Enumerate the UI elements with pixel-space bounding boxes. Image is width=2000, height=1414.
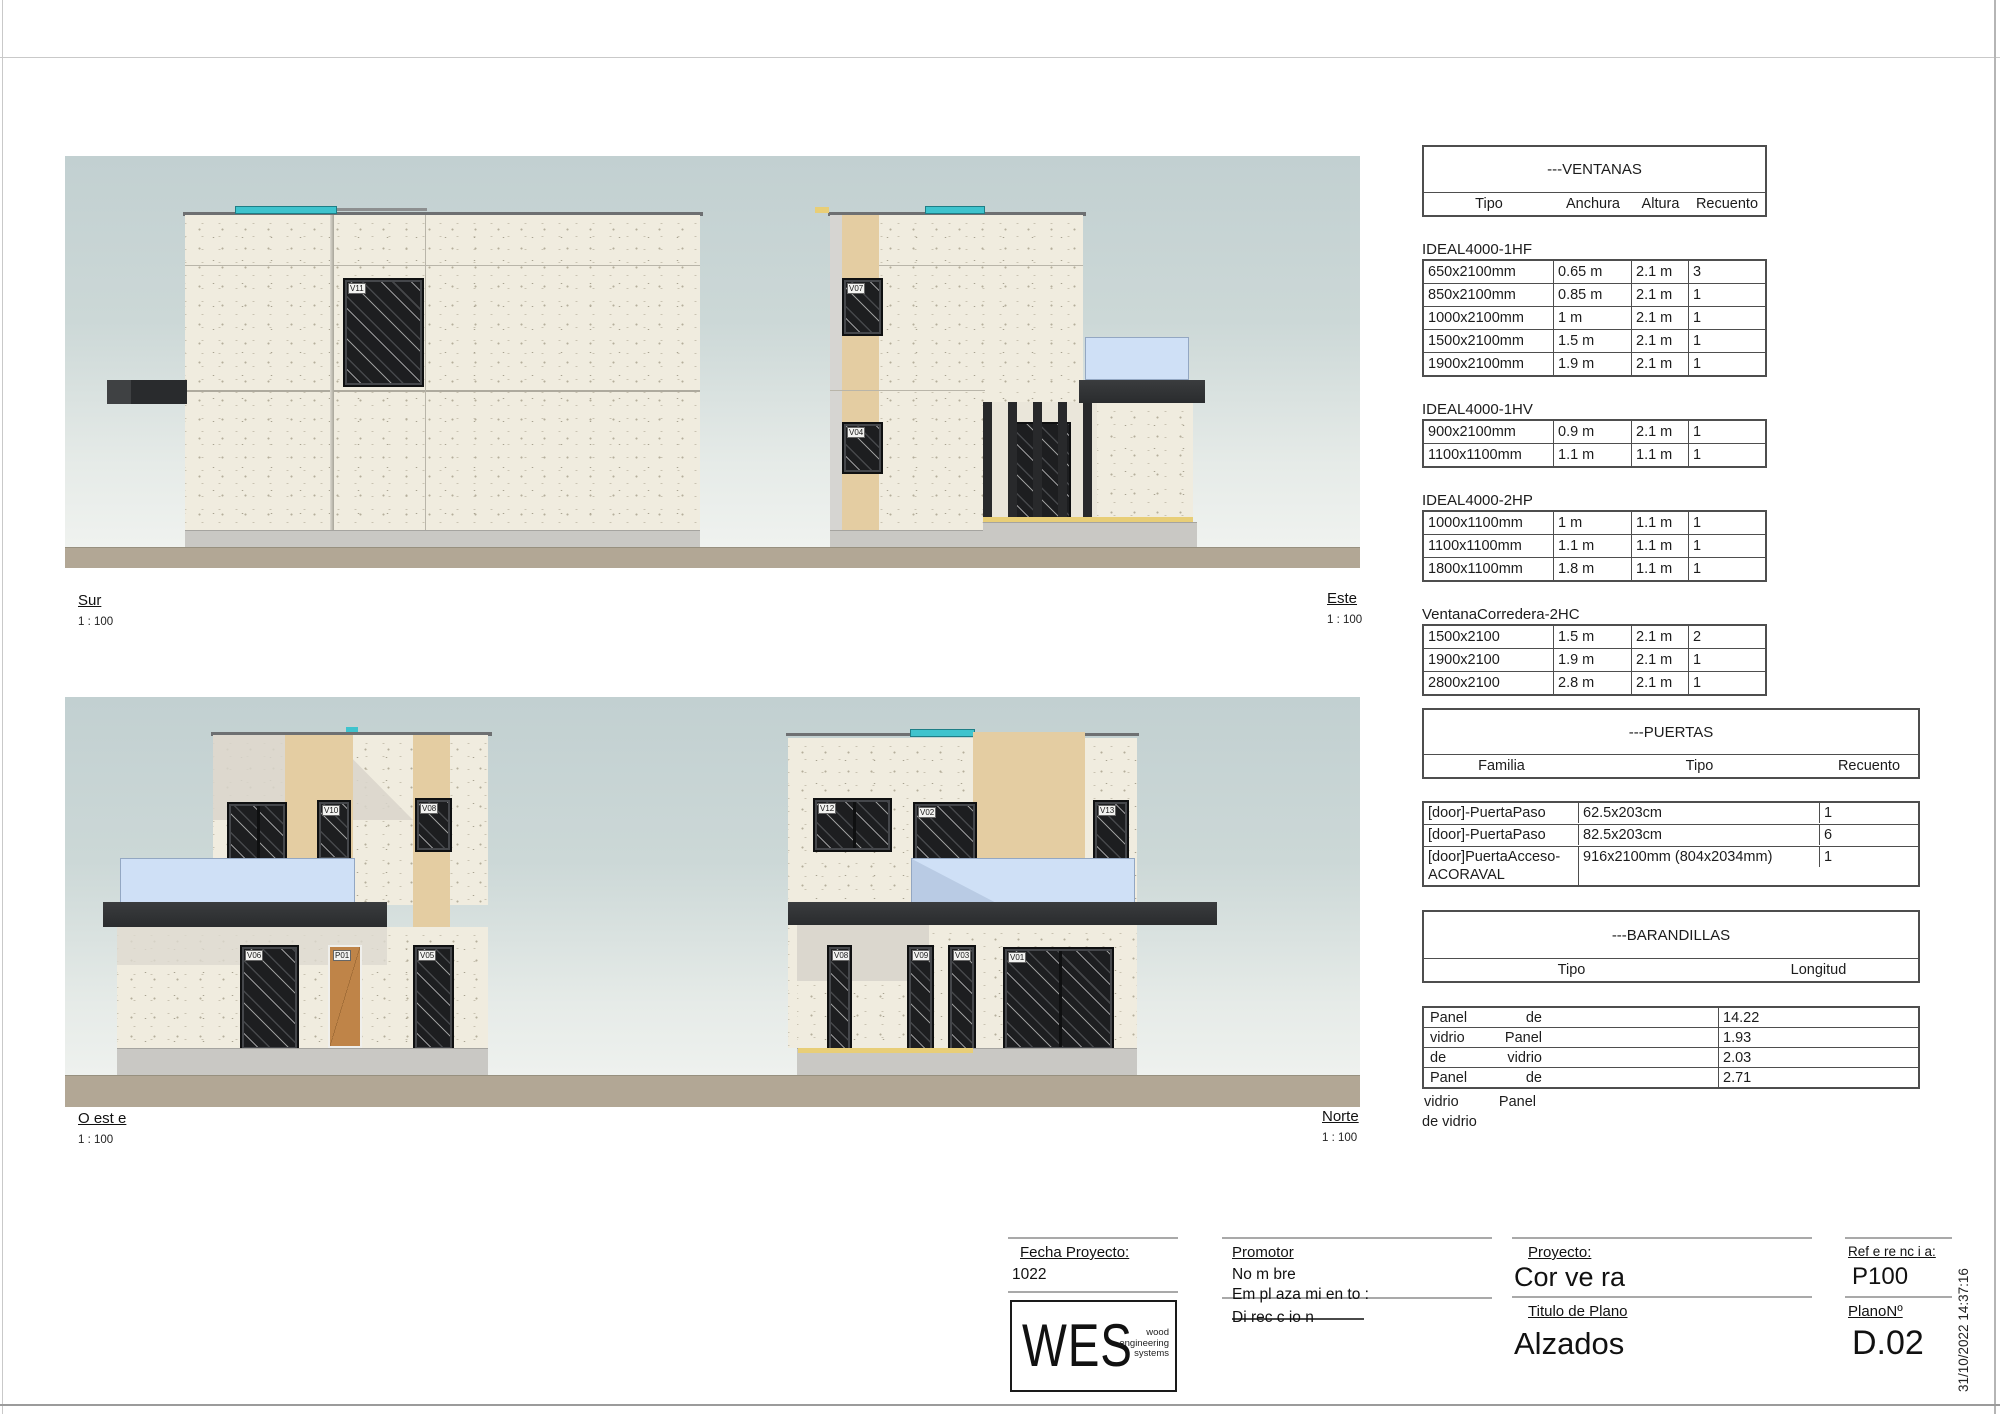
window-tag: V10: [322, 805, 340, 816]
table-cell: 1000x1100mm: [1424, 512, 1554, 534]
table-row: 900x2100mm0.9 m2.1 m1: [1424, 421, 1765, 443]
este-joint-line: [879, 265, 1083, 266]
table-row: [door]-PuertaPaso62.5x203cm1: [1424, 803, 1918, 824]
table-cell: 14.22: [1719, 1008, 1918, 1027]
table-cell: 1.1 m: [1632, 558, 1689, 580]
table-cell: 2800x2100: [1424, 672, 1554, 694]
table-cell: 1000x2100mm: [1424, 307, 1554, 329]
puertas-header: ---PUERTAS Familia Tipo Recuento: [1422, 708, 1920, 779]
tipo-words: devidrio: [1428, 1050, 1542, 1066]
table-row: Panelde2.71: [1424, 1067, 1918, 1087]
window-mullion: [257, 806, 260, 858]
table-cell: 1.1 m: [1554, 535, 1632, 557]
word: Panel: [1505, 1030, 1542, 1046]
table-cell: 1: [1689, 512, 1765, 534]
ventanas-group-name: IDEAL4000-1HV: [1422, 401, 1767, 419]
table-row: 1000x1100mm1 m1.1 m1: [1424, 512, 1765, 534]
ventanas-group-table: 1500x21001.5 m2.1 m21900x21001.9 m2.1 m1…: [1422, 624, 1767, 696]
promotor-nombre: No m bre: [1232, 1266, 1296, 1284]
table-cell: 900x2100mm: [1424, 421, 1554, 443]
column-header: Longitud: [1719, 962, 1918, 978]
table-cell: 2.1 m: [1632, 261, 1689, 283]
ground-band: [65, 547, 1360, 568]
table-row: 1500x2100mm1.5 m2.1 m1: [1424, 329, 1765, 352]
word: de: [1430, 1050, 1446, 1066]
window-tag: V09: [912, 950, 930, 961]
elevation-viewport-sur-este: V11 V07 V04: [65, 156, 1360, 568]
este-canopy: [1079, 380, 1205, 403]
table-cell: 1: [1689, 330, 1765, 352]
ventanas-group-name: IDEAL4000-1HF: [1422, 241, 1767, 259]
norte-canopy: [788, 902, 1217, 925]
ventanas-group-table: 1000x1100mm1 m1.1 m11100x1100mm1.1 m1.1 …: [1422, 510, 1767, 582]
table-cell: 1: [1689, 672, 1765, 694]
table-cell: 1.9 m: [1554, 353, 1632, 375]
table-row: 850x2100mm0.85 m2.1 m1: [1424, 283, 1765, 306]
word: vidrio: [1430, 1030, 1465, 1046]
word: vidrio: [1424, 1092, 1459, 1112]
table-cell: 2.71: [1719, 1068, 1918, 1087]
oeste-plinth: [117, 1048, 488, 1076]
norte-window-v12: V12: [813, 798, 892, 852]
este-tan-strip: [842, 215, 879, 530]
table-row: 1500x21001.5 m2.1 m2: [1424, 626, 1765, 648]
wes-logo-tagline: wood engineering systems: [1119, 1328, 1169, 1360]
window-tag: V02: [918, 807, 936, 818]
table-row: Panelde14.22: [1424, 1008, 1918, 1027]
norte-tan-panel: [973, 732, 1085, 860]
window-tag: V07: [847, 283, 865, 294]
table-cell: 1.8 m: [1554, 558, 1632, 580]
elevation-label-oeste: O est e: [78, 1110, 126, 1127]
table-cell: 850x2100mm: [1424, 284, 1554, 306]
window-tag: V08: [420, 803, 438, 814]
table-cell: 2.1 m: [1632, 307, 1689, 329]
promotor-direccion: Di rec c io n: [1232, 1309, 1314, 1327]
tipo-words: vidrioPanel: [1428, 1030, 1542, 1046]
barandillas-columns: Tipo Longitud: [1424, 958, 1918, 981]
ventanas-group-name: IDEAL4000-2HP: [1422, 492, 1767, 510]
wes-logo-text: WES: [1022, 1316, 1133, 1376]
table-cell: 2.1 m: [1632, 330, 1689, 352]
este-porch-base: [983, 522, 1097, 549]
este-porch-slats: [983, 402, 1097, 517]
table-cell: 1.1 m: [1632, 444, 1689, 466]
ventanas-group-table: 900x2100mm0.9 m2.1 m11100x1100mm1.1 m1.1…: [1422, 419, 1767, 468]
table-cell: 2.1 m: [1632, 421, 1689, 443]
sur-roof-skylight: [235, 206, 337, 214]
elevation-label-sur: Sur: [78, 592, 101, 609]
table-row: 1000x2100mm1 m2.1 m1: [1424, 306, 1765, 329]
window-tag: V06: [245, 950, 263, 961]
sur-joint-line: [185, 265, 700, 266]
table-row: 1900x21001.9 m2.1 m1: [1424, 648, 1765, 671]
ventanas-group-name: VentanaCorredera-2HC: [1422, 606, 1767, 624]
titleblock-rule: [1222, 1237, 1492, 1239]
window-mullion: [1059, 951, 1062, 1047]
este-window-upper: V07: [842, 278, 883, 336]
norte-opening-2: V09: [907, 945, 934, 1052]
proyecto-value: Cor ve ra: [1514, 1262, 1625, 1293]
fecha-label: Fecha Proyecto:: [1020, 1244, 1129, 1261]
table-cell: 1.1 m: [1554, 444, 1632, 466]
sheet-frame-bottom: [0, 1404, 2000, 1406]
word: de: [1526, 1070, 1542, 1086]
table-row: 1900x2100mm1.9 m2.1 m1: [1424, 352, 1765, 375]
sur-panel-joint2: [425, 215, 426, 530]
table-cell: 1100x1100mm: [1424, 444, 1554, 466]
plano-value: D.02: [1852, 1324, 1924, 1363]
sur-panel-joint: [330, 215, 334, 530]
titleblock-rule: [1512, 1237, 1812, 1239]
titulo-label: Titulo de Plano: [1528, 1303, 1628, 1320]
titleblock-rule: [1845, 1237, 1952, 1239]
table-cell: 1: [1820, 803, 1918, 823]
table-cell: 1500x2100mm: [1424, 330, 1554, 352]
norte-opening-1: V08: [827, 945, 852, 1052]
table-cell: 2.1 m: [1632, 284, 1689, 306]
este-wing-base: [1097, 522, 1197, 549]
table-row: 2800x21002.8 m2.1 m1: [1424, 671, 1765, 694]
puertas-schedule: ---PUERTAS Familia Tipo Recuento [door]-…: [1422, 708, 1920, 887]
table-cell: 1: [1689, 649, 1765, 671]
wes-logo: WES wood engineering systems: [1010, 1300, 1177, 1392]
column-header: Tipo: [1424, 196, 1554, 212]
promotor-emplazamiento: Em pl aza mi en to :: [1232, 1286, 1369, 1304]
table-cell: 1.1 m: [1632, 535, 1689, 557]
table-cell: 3: [1689, 261, 1765, 283]
table-cell: 2.1 m: [1632, 649, 1689, 671]
table-row: 650x2100mm0.65 m2.1 m3: [1424, 261, 1765, 283]
table-row: vidrioPanel1.93: [1424, 1027, 1918, 1047]
balustrade-shade: [912, 859, 996, 903]
table-cell: 1: [1689, 307, 1765, 329]
table-cell: 2.8 m: [1554, 672, 1632, 694]
table-row: 1100x1100mm1.1 m1.1 m1: [1424, 443, 1765, 466]
table-cell: 1: [1689, 353, 1765, 375]
table-cell: 1: [1689, 421, 1765, 443]
plano-label: PlanoNº: [1848, 1303, 1903, 1320]
sheet-frame-right: [1994, 0, 1996, 1414]
barandillas-overflow: vidrio Panel de vidrio: [1422, 1092, 1920, 1132]
table-cell: [door]-PuertaPaso: [1424, 803, 1579, 823]
sheet-frame-top: [0, 57, 2000, 58]
ventanas-columns: Tipo Anchura Altura Recuento: [1424, 192, 1765, 215]
sheet-frame-left: [2, 0, 3, 1414]
table-row: [door]PuertaAcceso-ACORAVAL916x2100mm (8…: [1424, 846, 1918, 885]
este-wing-wall: [1097, 403, 1193, 517]
window-tag: V12: [818, 803, 836, 814]
table-cell: 2.1 m: [1632, 672, 1689, 694]
column-header: Anchura: [1554, 196, 1632, 212]
este-roof-skylight: [925, 206, 985, 214]
oeste-glass-balustrade: [120, 858, 355, 905]
word: vidrio: [1507, 1050, 1542, 1066]
oeste-window-v06: V06: [240, 945, 299, 1051]
word: de: [1526, 1010, 1542, 1026]
table-cell: 1: [1689, 284, 1765, 306]
table-cell: 2.03: [1719, 1048, 1918, 1067]
norte-glass-balustrade: [911, 858, 1135, 904]
table-cell: 916x2100mm (804x2034mm): [1579, 847, 1820, 867]
este-window-lower: V04: [842, 422, 883, 474]
window-tag: V13: [1098, 805, 1116, 816]
word: Panel: [1430, 1010, 1467, 1026]
oeste-window-double: [227, 802, 287, 862]
table-cell: 1.5 m: [1554, 330, 1632, 352]
este-roof-yellow: [815, 207, 829, 213]
word: Panel: [1430, 1070, 1467, 1086]
tipo-words: Panelde: [1428, 1010, 1542, 1026]
table-cell: 2.1 m: [1632, 626, 1689, 648]
table-cell: 1800x1100mm: [1424, 558, 1554, 580]
table-cell: Panelde: [1424, 1068, 1719, 1087]
table-cell: 1.5 m: [1554, 626, 1632, 648]
table-cell: 6: [1820, 825, 1918, 845]
puertas-columns: Familia Tipo Recuento: [1424, 754, 1918, 777]
norte-opening-3: V03: [948, 945, 976, 1052]
ventanas-group-table: 650x2100mm0.65 m2.1 m3850x2100mm0.85 m2.…: [1422, 259, 1767, 377]
table-cell: 82.5x203cm: [1579, 825, 1820, 845]
window-tag: V04: [847, 427, 865, 438]
overflow-line: de vidrio: [1422, 1112, 1920, 1132]
barandillas-schedule: ---BARANDILLAS Tipo Longitud Panelde14.2…: [1422, 910, 1920, 1132]
titulo-value: Alzados: [1514, 1326, 1624, 1362]
table-cell: 2: [1689, 626, 1765, 648]
table-cell: 62.5x203cm: [1579, 803, 1820, 823]
table-cell: 0.9 m: [1554, 421, 1632, 443]
table-cell: 2.1 m: [1632, 353, 1689, 375]
door-tag: P01: [333, 950, 351, 961]
oeste-window-v05: V05: [413, 945, 454, 1051]
elevation-scale-norte: 1 : 100: [1322, 1132, 1357, 1144]
table-cell: 1.93: [1719, 1028, 1918, 1047]
column-header: Recuento: [1820, 758, 1918, 774]
table-cell: 0.65 m: [1554, 261, 1632, 283]
table-cell: 1: [1689, 558, 1765, 580]
oeste-roof-skylight: [346, 727, 358, 732]
table-cell: 1500x2100: [1424, 626, 1554, 648]
window-tag: V05: [418, 950, 436, 961]
ventanas-schedule: ---VENTANAS Tipo Anchura Altura Recuento…: [1422, 145, 1767, 696]
barandillas-title: ---BARANDILLAS: [1424, 912, 1918, 958]
window-mullion: [853, 802, 856, 848]
titleblock-rule: [1008, 1237, 1178, 1239]
table-cell: [door]PuertaAcceso-ACORAVAL: [1424, 847, 1579, 885]
column-header: Familia: [1424, 758, 1579, 774]
referencia-value: P100: [1852, 1263, 1908, 1291]
overflow-line: vidrio Panel: [1422, 1092, 1536, 1112]
column-header: Recuento: [1689, 196, 1765, 212]
column-header: Tipo: [1579, 758, 1820, 774]
window-tag: V08: [832, 950, 850, 961]
tagline-line: engineering: [1119, 1338, 1169, 1349]
norte-threshold: [798, 1048, 973, 1053]
ventanas-groups: IDEAL4000-1HF650x2100mm0.65 m2.1 m3850x2…: [1422, 241, 1767, 696]
norte-roof-skylight: [910, 729, 975, 737]
tipo-words: Panelde: [1428, 1070, 1542, 1086]
window-tag: V01: [1008, 952, 1026, 963]
norte-window-v02: V02: [913, 802, 977, 864]
elevation-scale-oeste: 1 : 100: [78, 1134, 113, 1146]
sur-wall: [185, 215, 700, 530]
oeste-canopy: [103, 902, 387, 927]
table-cell: 0.85 m: [1554, 284, 1632, 306]
table-cell: [door]-PuertaPaso: [1424, 825, 1579, 845]
ventanas-header: ---VENTANAS Tipo Anchura Altura Recuento: [1422, 145, 1767, 217]
table-cell: 1: [1689, 535, 1765, 557]
titleblock-rule: [1845, 1296, 1952, 1298]
fecha-value: 1022: [1012, 1266, 1046, 1284]
table-cell: 1900x2100mm: [1424, 353, 1554, 375]
este-entry-porch: [983, 402, 1097, 517]
sur-window: V11: [343, 278, 424, 387]
table-cell: 1900x2100: [1424, 649, 1554, 671]
window-tag: V11: [348, 283, 366, 294]
table-cell: Panelde: [1424, 1008, 1719, 1027]
elevation-viewport-oeste-norte: V10 V08 V06 P01 V05 V12 V02 V1: [65, 697, 1360, 1107]
table-cell: devidrio: [1424, 1048, 1719, 1067]
tagline-line: wood: [1146, 1327, 1169, 1338]
table-cell: 1 m: [1554, 307, 1632, 329]
este-glass-balustrade: [1085, 337, 1189, 380]
table-cell: 1100x1100mm: [1424, 535, 1554, 557]
promotor-label: Promotor: [1232, 1244, 1294, 1261]
print-timestamp: 31/10/2022 14:37:16: [1956, 1192, 1971, 1392]
table-row: devidrio2.03: [1424, 1047, 1918, 1067]
word: Panel: [1499, 1092, 1536, 1112]
sur-roof-cap: [337, 208, 427, 211]
proyecto-label: Proyecto:: [1528, 1244, 1591, 1261]
table-cell: 1.1 m: [1632, 512, 1689, 534]
barandillas-header: ---BARANDILLAS Tipo Longitud: [1422, 910, 1920, 983]
drawing-sheet: V11 V07 V04 Sur 1 : 100 Est: [0, 0, 2000, 1414]
elevation-label-norte: Norte: [1322, 1108, 1359, 1125]
norte-sliding-window-v01: V01: [1003, 947, 1114, 1051]
table-cell: 1: [1689, 444, 1765, 466]
column-header: Tipo: [1424, 962, 1719, 978]
table-cell: vidrioPanel: [1424, 1028, 1719, 1047]
table-row: 1100x1100mm1.1 m1.1 m1: [1424, 534, 1765, 557]
titleblock-rule: [1512, 1296, 1812, 1298]
puertas-title: ---PUERTAS: [1424, 710, 1918, 754]
referencia-label: Ref e re nc i a:: [1848, 1244, 1936, 1259]
window-tag: V03: [953, 950, 971, 961]
este-floor-joint: [830, 390, 985, 391]
ground-band: [65, 1075, 1360, 1107]
table-row: [door]-PuertaPaso82.5x203cm6: [1424, 824, 1918, 846]
table-row: 1800x1100mm1.8 m1.1 m1: [1424, 557, 1765, 580]
table-cell: 1 m: [1554, 512, 1632, 534]
table-cell: 1: [1820, 847, 1918, 867]
oeste-door-p01: P01: [328, 945, 362, 1048]
table-cell: 1.9 m: [1554, 649, 1632, 671]
barandillas-rows: Panelde14.22vidrioPanel1.93devidrio2.03P…: [1422, 1006, 1920, 1089]
ventanas-title: ---VENTANAS: [1424, 147, 1765, 192]
table-cell: 650x2100mm: [1424, 261, 1554, 283]
titleblock-rule: [1008, 1291, 1178, 1293]
norte-window-v13: V13: [1093, 800, 1129, 864]
elevation-scale-sur: 1 : 100: [78, 616, 113, 628]
tagline-line: systems: [1134, 1348, 1169, 1359]
sur-side-canopy: [107, 380, 187, 404]
column-header: Altura: [1632, 196, 1689, 212]
sur-floor-joint: [185, 390, 700, 392]
elevation-label-este: Este: [1327, 590, 1357, 607]
oeste-window-v10: V10: [317, 800, 351, 861]
oeste-window-v08: V08: [415, 798, 452, 852]
puertas-rows: [door]-PuertaPaso62.5x203cm1[door]-Puert…: [1422, 801, 1920, 887]
elevation-scale-este: 1 : 100: [1327, 614, 1362, 626]
